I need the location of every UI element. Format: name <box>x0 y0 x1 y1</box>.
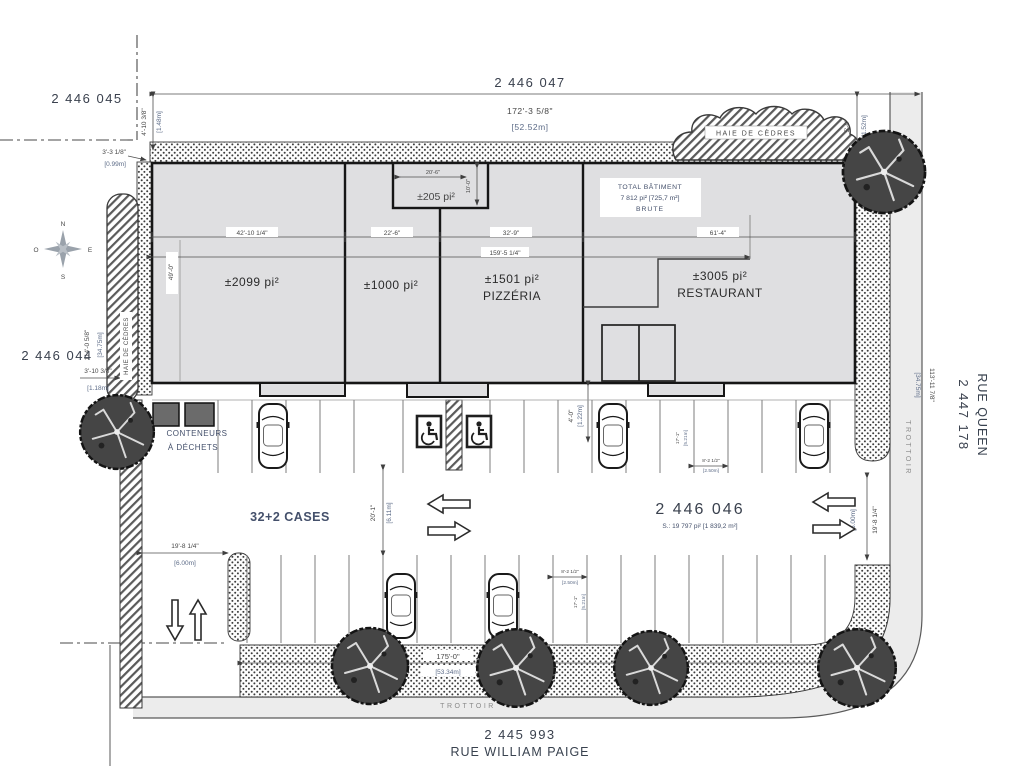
arrow-left-icon <box>428 495 470 513</box>
dim-stall2-depth-m: [5.21m] <box>581 594 587 610</box>
dim-left-offset: 4'-10 3/8" <box>141 108 148 136</box>
waste-containers <box>153 403 214 426</box>
dim-corner: 3'-3 1/8" <box>102 149 126 156</box>
conteneurs-label-1: CONTENEURS <box>166 429 227 438</box>
building-porch-2 <box>407 383 488 397</box>
dim-stall1-depth-m: [5.21m] <box>683 430 689 446</box>
conteneurs-label-2: À DÉCHETS <box>168 443 218 452</box>
hedge-left-label: HAIE DE CÈDRES <box>123 317 130 375</box>
total-building-box: TOTAL BÂTIMENT 7 812 pi² [725,7 m²] BRUT… <box>600 178 701 217</box>
dim-aisle-m: [6.11m] <box>386 502 393 523</box>
dim-stall1-width-m: [2.50m] <box>703 468 719 474</box>
dim-left-gap: 3'-10 3/8" <box>84 368 112 375</box>
street-rue-queen: RUE QUEEN <box>975 373 989 456</box>
dim-top-width-m: [52.52m] <box>511 122 548 132</box>
arrow-down-icon <box>167 600 183 640</box>
dim-depth: 49'-0" <box>168 263 175 280</box>
dim-seg2: 22'-6" <box>384 230 401 237</box>
compass-s: S <box>61 274 66 281</box>
street-rue-william-paige: RUE WILLIAM PAIGE <box>450 745 589 759</box>
parked-cars <box>257 404 831 638</box>
building-porch-3 <box>648 383 724 396</box>
dim-walk-m: [1.22m] <box>577 405 584 427</box>
car <box>597 404 630 468</box>
handicap-parking-icon <box>467 416 491 447</box>
lot-2446045: 2 446 045 <box>51 91 122 106</box>
parking-count-label: 32+2 CASES <box>250 510 330 524</box>
dim-seg3: 32'-9" <box>503 230 520 237</box>
lot-2446046: 2 446 046 <box>655 501 744 518</box>
arrow-right-icon <box>813 520 855 538</box>
bumpout-area: ±205 pi² <box>417 191 455 203</box>
dim-left-offset-m: [1.48m] <box>156 111 163 133</box>
dim-bump-width: 20'-6" <box>426 170 440 176</box>
cedar-hedge-top: HAIE DE CÈDRES <box>673 107 860 161</box>
dim-right-length: 113'-11 7/8" <box>928 368 935 402</box>
total-line1: TOTAL BÂTIMENT <box>618 182 682 191</box>
dim-driveway-west-m: [6.00m] <box>174 560 196 567</box>
car <box>798 404 831 468</box>
tree-icon <box>332 628 408 704</box>
site-plan-sheet: HAIE DE CÈDRES TOTAL BÂTIMENT 7 812 pi² … <box>0 0 1024 768</box>
dim-left-length-m: [34.75m] <box>97 332 104 357</box>
unit4-name: RESTAURANT <box>677 286 763 300</box>
site-plan-drawing: HAIE DE CÈDRES TOTAL BÂTIMENT 7 812 pi² … <box>0 0 1024 768</box>
hedge-top-label: HAIE DE CÈDRES <box>716 129 796 138</box>
tree-icon <box>843 131 925 213</box>
unit3-name: PIZZÉRIA <box>483 288 541 303</box>
total-line3: BRUTE <box>636 206 664 213</box>
dim-stall1-width: 8'-2 1/2" <box>702 458 720 464</box>
dim-bottom-width: 175'-0" <box>436 652 460 661</box>
unit4-area: ±3005 pi² <box>693 269 747 283</box>
dim-left-gap-m: [1.18m] <box>87 385 109 392</box>
hatched-island-row1 <box>446 400 462 470</box>
dim-right-length-m: [34.75m] <box>914 372 921 397</box>
dim-stall2-width: 8'-2 1/2" <box>561 569 579 575</box>
tree-icon <box>477 629 555 707</box>
dim-top-width: 172'-3 5/8" <box>507 106 553 116</box>
dim-aisle: 20'-1" <box>370 504 377 521</box>
car <box>257 404 290 468</box>
arrow-up-icon <box>190 600 206 640</box>
lot-2446047: 2 446 047 <box>494 75 565 90</box>
dim-front: 159'-5 1/4" <box>489 250 521 257</box>
lot-2445993: 2 445 993 <box>484 727 555 742</box>
compass-e: E <box>88 247 93 254</box>
dim-corner-m: [0.99m] <box>104 161 126 168</box>
total-line2: 7 812 pi² [725,7 m²] <box>621 195 680 202</box>
trottoir-bottom-label: TROTTOIR <box>440 703 496 710</box>
dim-bottom-width-m: [53.34m] <box>435 669 460 676</box>
compass-rose: N S E O <box>33 221 92 281</box>
compass-o: O <box>33 247 38 254</box>
dim-stall2-depth: 17'-1" <box>573 596 579 609</box>
trottoir-right-label: TROTTOIR <box>904 420 911 476</box>
unit2-area: ±1000 pi² <box>364 278 418 292</box>
tree-icon <box>80 395 154 469</box>
dim-driveway-east: 19'-8 1/4" <box>872 506 879 534</box>
car <box>385 574 418 638</box>
dim-seg4: 61'-4" <box>710 230 727 237</box>
unit1-area: ±2099 pi² <box>225 275 279 289</box>
lot-2446044: 2 446 044 <box>21 348 92 363</box>
lot-2447178: 2 447 178 <box>956 379 971 450</box>
dim-stall1-depth: 17'-1" <box>675 432 681 445</box>
dim-walk: 4'-0" <box>568 409 575 423</box>
dim-bump-height: 10'-0" <box>466 179 472 193</box>
dim-hedge-right: 5'-0" <box>844 119 851 133</box>
tree-icon <box>818 629 896 707</box>
tree-icon <box>614 631 688 705</box>
arrow-left-icon <box>813 493 855 511</box>
building-porch-1 <box>260 383 345 396</box>
dim-driveway-west: 19'-8 1/4" <box>171 543 199 550</box>
dim-stall2-width-m: [2.50m] <box>562 580 578 586</box>
compass-n: N <box>61 221 66 228</box>
dim-seg1: 42'-10 1/4" <box>236 230 268 237</box>
arrow-right-icon <box>428 522 470 540</box>
handicap-parking-icon <box>417 416 441 447</box>
unit3-area: ±1501 pi² <box>485 272 539 286</box>
lot-2446046-area: S.: 19 797 pi² [1 839,2 m²] <box>662 523 737 530</box>
